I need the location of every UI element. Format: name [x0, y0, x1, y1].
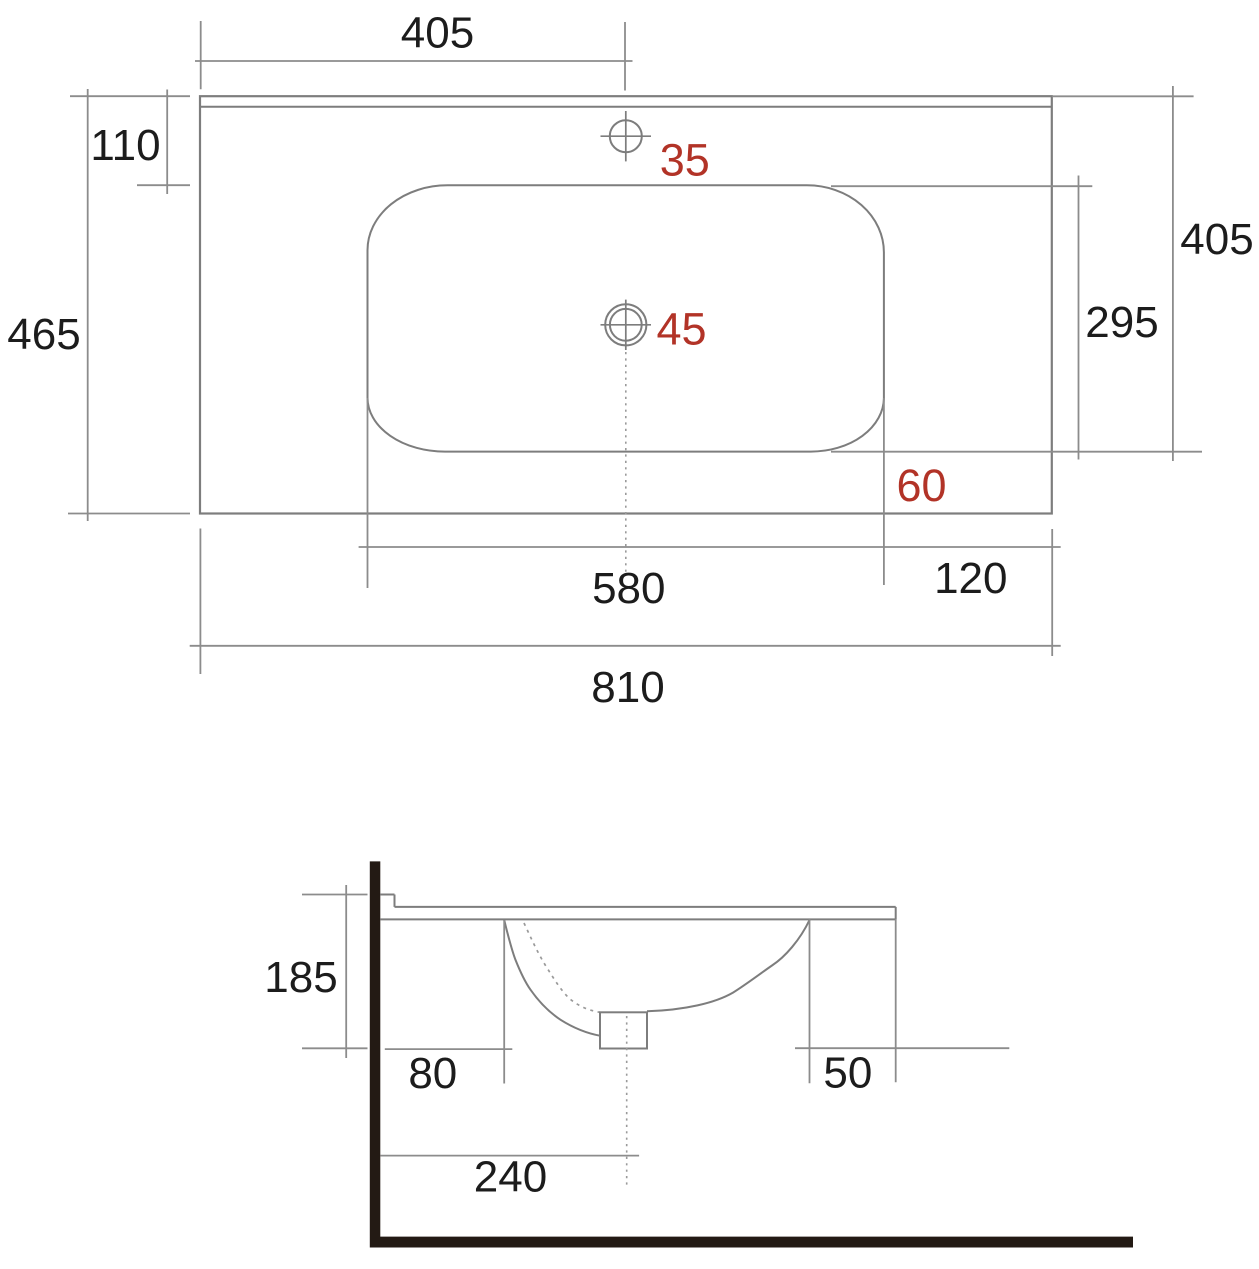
svg-text:45: 45 — [656, 304, 706, 355]
svg-text:465: 465 — [7, 310, 80, 359]
svg-text:35: 35 — [660, 135, 710, 186]
svg-text:405: 405 — [1180, 215, 1253, 264]
svg-text:580: 580 — [592, 564, 665, 613]
svg-text:120: 120 — [934, 554, 1007, 603]
svg-text:185: 185 — [264, 953, 337, 1002]
svg-text:110: 110 — [90, 121, 160, 170]
svg-text:60: 60 — [896, 460, 946, 511]
svg-text:80: 80 — [408, 1049, 457, 1098]
svg-text:295: 295 — [1085, 298, 1158, 347]
svg-text:240: 240 — [474, 1153, 547, 1202]
svg-text:810: 810 — [591, 663, 664, 712]
svg-text:405: 405 — [401, 9, 474, 58]
svg-text:50: 50 — [823, 1049, 872, 1098]
